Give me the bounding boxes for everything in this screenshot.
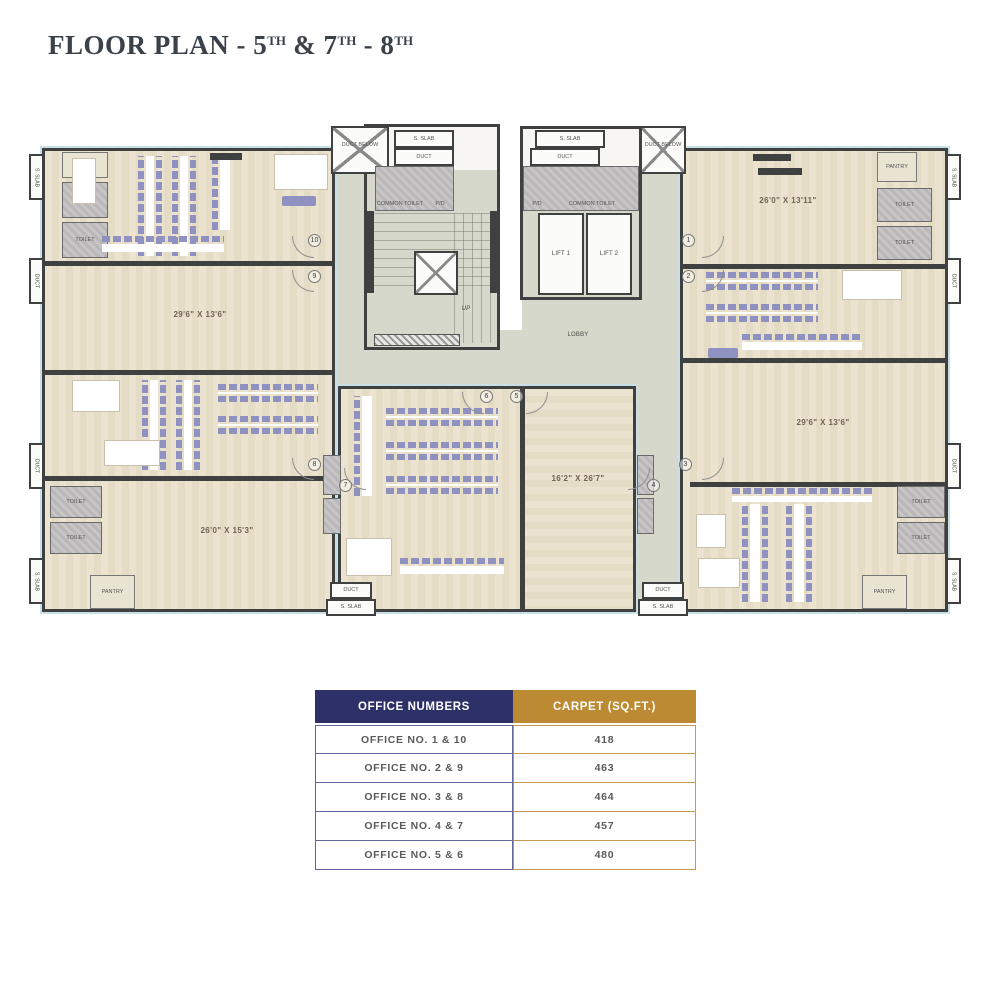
office-5-floor bbox=[525, 389, 633, 609]
duct-shaft: S. SLAB bbox=[29, 154, 44, 200]
title-text: & 7 bbox=[286, 30, 338, 60]
toilet-label: TOILET bbox=[66, 499, 85, 505]
lobby-label: LOBBY bbox=[548, 332, 608, 338]
wall bbox=[680, 264, 948, 269]
carpet-cell: 463 bbox=[513, 754, 696, 783]
s-slab-box: S. SLAB bbox=[394, 130, 454, 148]
title-text: - 8 bbox=[356, 30, 394, 60]
furniture-desk bbox=[274, 154, 328, 190]
common-toilet-label: COMMON TOILET bbox=[557, 201, 627, 207]
s-slab-label: S. SLAB bbox=[951, 168, 957, 187]
wall bbox=[42, 261, 335, 266]
table-row: OFFICE NO. 3 & 8 464 bbox=[315, 783, 696, 812]
door-number: 1 bbox=[682, 234, 695, 247]
duct-label: DUCT bbox=[34, 274, 40, 288]
core-gap bbox=[498, 118, 522, 330]
carpet-cell: 418 bbox=[513, 725, 696, 754]
toilet-room: TOILET bbox=[877, 188, 932, 222]
furniture-sofa bbox=[708, 348, 738, 358]
duct-box: DUCT bbox=[330, 582, 372, 599]
floor-plan: 29'6" X 13'6" 26'0" X 15'3" 16'2" X 26'7… bbox=[42, 118, 950, 622]
title-sup: TH bbox=[267, 33, 286, 48]
area-table: OFFICE NUMBERS CARPET (SQ.FT.) OFFICE NO… bbox=[315, 690, 696, 870]
beam-mark bbox=[210, 153, 242, 160]
duct-below-label: DUCT BELOW bbox=[338, 142, 382, 148]
duct-shaft: S. SLAB bbox=[29, 558, 44, 604]
lift-2: LIFT 2 bbox=[586, 213, 632, 295]
duct-box: DUCT bbox=[642, 582, 684, 599]
office-cell: OFFICE NO. 4 & 7 bbox=[315, 812, 513, 841]
table-row: OFFICE NO. 4 & 7 457 bbox=[315, 812, 696, 841]
s-slab-box: S. SLAB bbox=[535, 130, 605, 148]
carpet-cell: 464 bbox=[513, 783, 696, 812]
furniture-desks bbox=[386, 442, 498, 460]
wall bbox=[490, 211, 498, 293]
toilet-room: TOILET bbox=[897, 522, 945, 554]
furniture-desk bbox=[72, 158, 96, 204]
s-slab-label: S. SLAB bbox=[560, 136, 581, 142]
office-cell: OFFICE NO. 3 & 8 bbox=[315, 783, 513, 812]
furniture-desks bbox=[400, 558, 504, 574]
duct-below-label: DUCT BELOW bbox=[643, 142, 683, 148]
toilet-room: TOILET bbox=[877, 226, 932, 260]
door-number: 4 bbox=[647, 479, 660, 492]
furniture-desks bbox=[386, 476, 498, 494]
office-cell: OFFICE NO. 1 & 10 bbox=[315, 725, 513, 754]
furniture-desks bbox=[176, 380, 200, 470]
page: FLOOR PLAN - 5TH & 7TH - 8TH 29'6" X 13'… bbox=[0, 0, 1000, 990]
stair-shaft bbox=[414, 251, 458, 295]
duct-below-box bbox=[640, 126, 686, 174]
s-slab-label: S. SLAB bbox=[951, 572, 957, 591]
door-number: 8 bbox=[308, 458, 321, 471]
toilet-label: TOILET bbox=[75, 237, 94, 243]
s-slab-label: S. SLAB bbox=[34, 572, 40, 591]
toilet-label: TOILET bbox=[895, 240, 914, 246]
beam-mark bbox=[758, 168, 802, 175]
furniture-desks bbox=[786, 504, 812, 602]
duct-box: DUCT bbox=[530, 148, 600, 166]
table-row: OFFICE NO. 5 & 6 480 bbox=[315, 841, 696, 870]
furniture-desks bbox=[212, 160, 230, 230]
wall bbox=[366, 211, 374, 293]
office-cell: OFFICE NO. 5 & 6 bbox=[315, 841, 513, 870]
lift-2-label: LIFT 2 bbox=[600, 251, 618, 257]
wall bbox=[680, 358, 948, 363]
s-slab-box: S. SLAB bbox=[638, 599, 688, 616]
door-number: 7 bbox=[339, 479, 352, 492]
title-sup: TH bbox=[394, 33, 413, 48]
lift-1: LIFT 1 bbox=[538, 213, 584, 295]
pantry-room: PANTRY bbox=[90, 575, 135, 609]
furniture-desks bbox=[742, 334, 862, 350]
pd-label: P/D bbox=[527, 201, 547, 207]
table-header-office-numbers: OFFICE NUMBERS bbox=[315, 690, 513, 723]
furniture-desks bbox=[706, 304, 818, 322]
door-number: 10 bbox=[308, 234, 321, 247]
up-label: UP bbox=[454, 306, 478, 312]
duct-label: DUCT bbox=[557, 154, 572, 160]
wall bbox=[520, 389, 525, 609]
duct-shaft: DUCT bbox=[946, 258, 961, 304]
title-text: FLOOR PLAN - 5 bbox=[48, 30, 267, 60]
table-row: OFFICE NO. 1 & 10 418 bbox=[315, 725, 696, 754]
pantry-label: PANTRY bbox=[886, 164, 908, 170]
table-body: OFFICE NO. 1 & 10 418 OFFICE NO. 2 & 9 4… bbox=[315, 725, 696, 870]
table-header-carpet: CARPET (SQ.FT.) bbox=[513, 690, 696, 723]
door-number: 5 bbox=[510, 390, 523, 403]
toilet-room bbox=[323, 455, 341, 495]
duct-shaft: S. SLAB bbox=[946, 154, 961, 200]
toilet-room bbox=[323, 498, 341, 534]
door-number: 3 bbox=[679, 458, 692, 471]
pantry-label: PANTRY bbox=[874, 589, 896, 595]
toilet-room bbox=[637, 498, 654, 534]
furniture-desk bbox=[842, 270, 902, 300]
door-number: 9 bbox=[308, 270, 321, 283]
duct-label: DUCT bbox=[951, 274, 957, 288]
room-dim-label: 29'6" X 13'6" bbox=[130, 310, 270, 319]
furniture-desks bbox=[218, 416, 318, 434]
toilet-label: TOILET bbox=[895, 202, 914, 208]
room-dim-label: 26'0" X 15'3" bbox=[157, 526, 297, 535]
furniture-desks bbox=[732, 488, 872, 502]
room-dim-label: 16'2" X 26'7" bbox=[523, 474, 633, 483]
furniture-desks bbox=[102, 236, 224, 252]
pantry-label: PANTRY bbox=[102, 589, 124, 595]
pantry-room: PANTRY bbox=[877, 152, 917, 182]
door-number: 2 bbox=[682, 270, 695, 283]
common-toilet-label: COMMON TOILET bbox=[372, 201, 428, 207]
duct-label: DUCT bbox=[655, 587, 670, 593]
wall bbox=[42, 476, 335, 481]
duct-label: DUCT bbox=[416, 154, 431, 160]
pd-label: P/D bbox=[430, 201, 450, 207]
toilet-label: TOILET bbox=[66, 535, 85, 541]
furniture-desk bbox=[104, 440, 160, 466]
toilet-label: TOILET bbox=[911, 535, 930, 541]
s-slab-label: S. SLAB bbox=[653, 604, 674, 610]
table-row: OFFICE NO. 2 & 9 463 bbox=[315, 754, 696, 783]
lift-1-label: LIFT 1 bbox=[552, 251, 570, 257]
duct-shaft: DUCT bbox=[29, 443, 44, 489]
duct-label: DUCT bbox=[951, 459, 957, 473]
furniture-desks bbox=[742, 504, 768, 602]
duct-shaft: S. SLAB bbox=[946, 558, 961, 604]
furniture-desk bbox=[696, 514, 726, 548]
carpet-cell: 480 bbox=[513, 841, 696, 870]
furniture-desk bbox=[698, 558, 740, 588]
pantry-room: PANTRY bbox=[862, 575, 907, 609]
s-slab-label: S. SLAB bbox=[414, 136, 435, 142]
toilet-room: TOILET bbox=[50, 522, 102, 554]
room-dim-label: 29'6" X 13'6" bbox=[753, 418, 893, 427]
duct-shaft: DUCT bbox=[29, 258, 44, 304]
toilet-label: TOILET bbox=[911, 499, 930, 505]
duct-label: DUCT bbox=[34, 459, 40, 473]
s-slab-label: S. SLAB bbox=[34, 168, 40, 187]
furniture-desk bbox=[72, 380, 120, 412]
door-number: 6 bbox=[480, 390, 493, 403]
office-cell: OFFICE NO. 2 & 9 bbox=[315, 754, 513, 783]
room-dim-label: 26'0" X 13'11" bbox=[718, 196, 858, 205]
wall bbox=[42, 370, 335, 375]
furniture-desk bbox=[346, 538, 392, 576]
stair-hatch bbox=[374, 334, 460, 346]
furniture-sofa bbox=[282, 196, 316, 206]
toilet-room: TOILET bbox=[50, 486, 102, 518]
furniture-desks bbox=[218, 384, 318, 402]
page-title: FLOOR PLAN - 5TH & 7TH - 8TH bbox=[48, 30, 413, 61]
title-sup: TH bbox=[338, 33, 357, 48]
duct-shaft: DUCT bbox=[946, 443, 961, 489]
beam-mark bbox=[753, 154, 791, 161]
carpet-cell: 457 bbox=[513, 812, 696, 841]
s-slab-label: S. SLAB bbox=[341, 604, 362, 610]
duct-box: DUCT bbox=[394, 148, 454, 166]
toilet-room: TOILET bbox=[897, 486, 945, 518]
duct-label: DUCT bbox=[343, 587, 358, 593]
table-header-row: OFFICE NUMBERS CARPET (SQ.FT.) bbox=[315, 690, 696, 723]
s-slab-box: S. SLAB bbox=[326, 599, 376, 616]
